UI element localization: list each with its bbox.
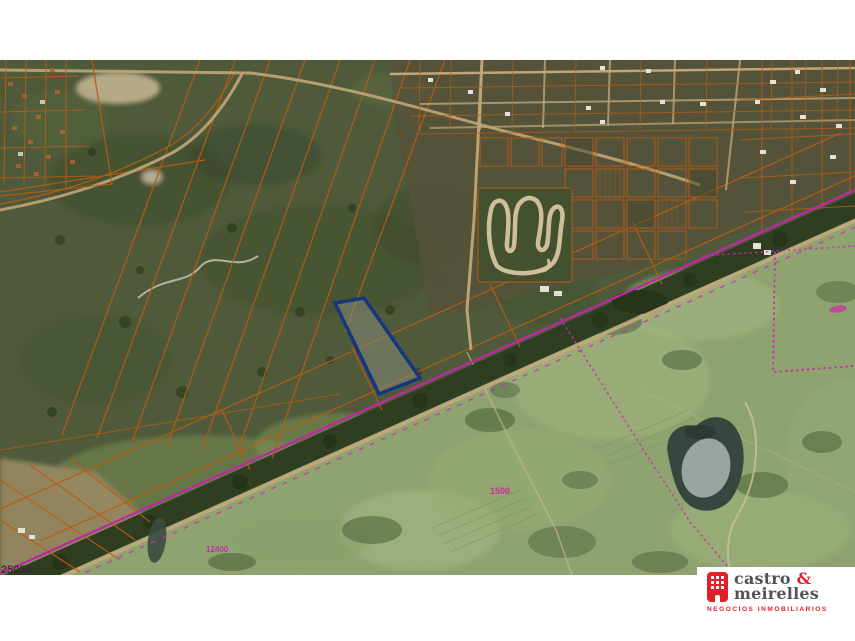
parcel-number-label: 25056 xyxy=(1,564,32,575)
satellite-map-canvas: 25056 1500 12400 xyxy=(0,60,855,575)
building-icon xyxy=(707,572,728,602)
measure-label-1: 1500 xyxy=(490,486,510,496)
brand-tagline: NEGOCIOS INMOBILIARIOS xyxy=(707,606,849,613)
brand-name: castro & meirelles xyxy=(734,571,819,601)
listing-image: 25056 1500 12400 castro & meirelles NEGO… xyxy=(0,0,855,641)
measure-label-2: 12400 xyxy=(206,545,229,554)
satellite-map: 25056 1500 12400 xyxy=(0,60,855,575)
karting-track xyxy=(478,188,572,282)
brand-logo: castro & meirelles NEGOCIOS INMOBILIARIO… xyxy=(697,567,855,641)
